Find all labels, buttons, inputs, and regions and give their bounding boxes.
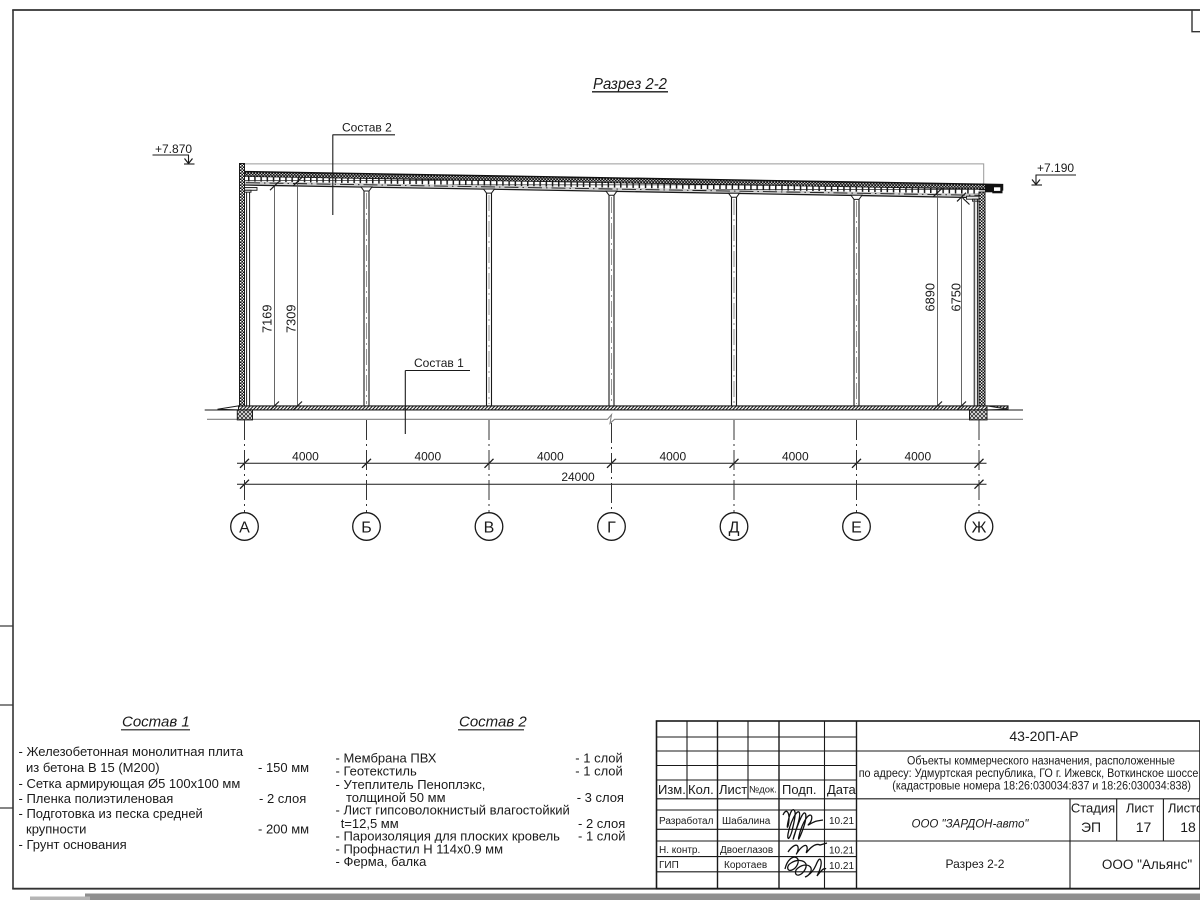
svg-text:+7.190: +7.190 [1037, 161, 1074, 175]
svg-text:из бетона В 15 (М200): из бетона В 15 (М200) [26, 760, 160, 775]
svg-text:Состав 1: Состав 1 [122, 714, 190, 731]
svg-text:Двоеглазов: Двоеглазов [720, 845, 773, 856]
svg-text:4000: 4000 [414, 450, 441, 464]
svg-text:Коротаев: Коротаев [724, 860, 767, 871]
svg-text:Листов: Листов [1168, 801, 1200, 816]
svg-text:6750: 6750 [949, 283, 964, 311]
svg-text:Разработал: Разработал [659, 815, 714, 827]
svg-text:17: 17 [1136, 819, 1152, 835]
svg-text:Состав 1: Состав 1 [414, 356, 464, 370]
svg-text:24000: 24000 [561, 470, 595, 484]
svg-text:+7.870: +7.870 [155, 142, 192, 156]
svg-text:Подп.: Подп. [782, 782, 817, 797]
svg-text:4000: 4000 [782, 450, 809, 464]
svg-text:Состав 2: Состав 2 [459, 714, 527, 731]
svg-text:6890: 6890 [923, 283, 938, 311]
svg-text:А: А [239, 520, 250, 537]
svg-text:Состав 2: Состав 2 [342, 121, 392, 135]
svg-text:Ж: Ж [972, 520, 987, 537]
svg-text:крупности: крупности [26, 821, 86, 836]
svg-text:- Железобетонная монолитная п: - Железобетонная монолитная плита [19, 744, 244, 759]
svg-text:Б: Б [361, 520, 372, 537]
svg-text:Дата: Дата [827, 782, 857, 797]
svg-text:Г: Г [607, 520, 616, 537]
svg-text:7169: 7169 [260, 305, 275, 333]
svg-text:- Сетка армирующая Ø5 100х100: - Сетка армирующая Ø5 100х100 мм [19, 776, 241, 791]
svg-text:Изм.: Изм. [658, 782, 686, 797]
svg-text:Лист: Лист [1126, 801, 1154, 816]
svg-text:Стадия: Стадия [1071, 801, 1115, 816]
svg-text:- 1 слой: - 1 слой [575, 764, 623, 779]
svg-text:Шабалина: Шабалина [722, 815, 771, 827]
svg-text:Н. контр.: Н. контр. [659, 845, 700, 856]
svg-text:10.21: 10.21 [829, 816, 854, 827]
svg-text:Кол.: Кол. [688, 782, 714, 797]
svg-text:- Подготовка из песка средней: - Подготовка из песка средней [19, 806, 203, 821]
svg-text:Е: Е [851, 520, 862, 537]
svg-text:ООО "ЗАРДОН-авто": ООО "ЗАРДОН-авто" [912, 819, 1030, 831]
svg-text:(кадастровые номера 18:26:0300: (кадастровые номера 18:26:030034:837 и 1… [892, 781, 1191, 793]
svg-text:7309: 7309 [284, 305, 299, 333]
svg-text:18: 18 [1180, 819, 1196, 835]
svg-text:- 3 слоя: - 3 слоя [577, 790, 624, 805]
svg-text:В: В [484, 520, 495, 537]
svg-text:4000: 4000 [292, 450, 319, 464]
svg-text:Разрез 2-2: Разрез 2-2 [946, 857, 1005, 871]
svg-text:Лист: Лист [719, 782, 747, 797]
svg-text:ГИП: ГИП [659, 860, 679, 871]
svg-text:- 200 мм: - 200 мм [258, 821, 309, 836]
svg-text:№док.: №док. [749, 785, 777, 796]
svg-text:Д: Д [729, 520, 740, 537]
svg-text:ЭП: ЭП [1081, 819, 1101, 835]
svg-text:- 150 мм: - 150 мм [258, 760, 309, 775]
svg-text:- 1 слой: - 1 слой [578, 829, 626, 844]
svg-text:по адресу: Удмуртская республи: по адресу: Удмуртская республика, ГО г. … [859, 768, 1199, 780]
svg-text:Разрез 2-2: Разрез 2-2 [593, 76, 667, 93]
svg-text:Объекты коммерческого назначен: Объекты коммерческого назначения, распол… [907, 756, 1175, 768]
svg-text:- Пленка полиэтиленовая: - Пленка полиэтиленовая [19, 791, 174, 806]
svg-text:4000: 4000 [904, 450, 931, 464]
svg-text:4000: 4000 [659, 450, 686, 464]
svg-text:- Ферма, балка: - Ферма, балка [336, 854, 428, 869]
svg-text:- Грунт основания: - Грунт основания [19, 837, 127, 852]
svg-text:ООО "Альянс": ООО "Альянс" [1102, 857, 1192, 872]
svg-text:4000: 4000 [537, 450, 564, 464]
svg-text:10.21: 10.21 [829, 846, 854, 857]
svg-text:- 2 слоя: - 2 слоя [259, 791, 306, 806]
svg-text:10.21: 10.21 [829, 861, 854, 872]
svg-text:43-20П-АР: 43-20П-АР [1009, 728, 1078, 744]
